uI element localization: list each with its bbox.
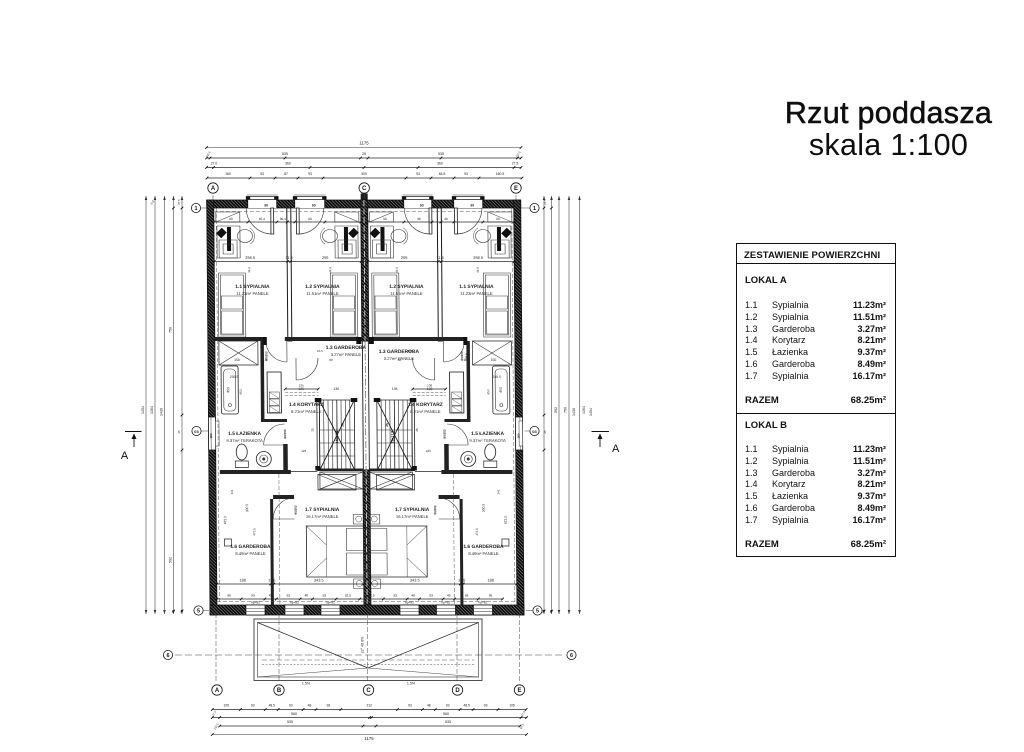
svg-text:A: A bbox=[215, 688, 220, 694]
svg-text:343.5: 343.5 bbox=[314, 578, 324, 583]
svg-text:125: 125 bbox=[299, 384, 304, 388]
svg-text:11.23m² PANELE: 11.23m² PANELE bbox=[460, 291, 493, 296]
svg-text:87: 87 bbox=[284, 172, 288, 176]
svg-text:90: 90 bbox=[470, 204, 474, 208]
svg-text:1.2 SYPIALNIA: 1.2 SYPIALNIA bbox=[305, 284, 340, 290]
svg-text:48: 48 bbox=[411, 594, 415, 598]
svg-text:1.2 SYPIALNIA: 1.2 SYPIALNIA bbox=[389, 284, 424, 290]
svg-text:1175: 1175 bbox=[359, 141, 369, 146]
svg-text:1430: 1430 bbox=[572, 408, 576, 416]
svg-text:560: 560 bbox=[443, 712, 449, 716]
svg-text:535: 535 bbox=[438, 152, 444, 156]
svg-text:27.5: 27.5 bbox=[211, 710, 217, 717]
svg-text:35: 35 bbox=[543, 430, 547, 434]
svg-text:93: 93 bbox=[408, 703, 412, 707]
svg-text:180: 180 bbox=[517, 433, 521, 438]
svg-text:212: 212 bbox=[366, 703, 372, 707]
svg-text:535: 535 bbox=[282, 152, 288, 156]
svg-text:11.23m² PANELE: 11.23m² PANELE bbox=[236, 291, 269, 296]
svg-text:93: 93 bbox=[308, 172, 312, 176]
svg-text:205.5: 205.5 bbox=[260, 353, 264, 361]
svg-text:6: 6 bbox=[570, 653, 573, 659]
svg-text:90/203: 90/203 bbox=[433, 505, 437, 515]
svg-text:93: 93 bbox=[286, 594, 290, 598]
svg-text:93: 93 bbox=[416, 172, 420, 176]
svg-text:35: 35 bbox=[177, 430, 181, 434]
svg-text:1175: 1175 bbox=[364, 736, 374, 741]
svg-text:95: 95 bbox=[489, 594, 493, 598]
svg-text:255: 255 bbox=[322, 255, 329, 260]
svg-text:10.5: 10.5 bbox=[317, 349, 323, 353]
svg-text:535: 535 bbox=[287, 720, 293, 724]
svg-text:750: 750 bbox=[564, 407, 568, 413]
svg-text:341: 341 bbox=[230, 489, 234, 494]
svg-text:137.5: 137.5 bbox=[515, 150, 522, 158]
svg-text:80/203: 80/203 bbox=[264, 351, 268, 361]
svg-text:93: 93 bbox=[229, 217, 233, 221]
svg-text:9.37m² TERAKOTA: 9.37m² TERAKOTA bbox=[469, 438, 506, 443]
svg-text:95: 95 bbox=[227, 594, 231, 598]
svg-text:48: 48 bbox=[308, 703, 312, 707]
svg-text:30.1: 30.1 bbox=[280, 217, 286, 221]
svg-text:90: 90 bbox=[420, 204, 424, 208]
svg-text:16.17m² PANELE: 16.17m² PANELE bbox=[396, 514, 429, 519]
svg-text:03: 03 bbox=[532, 429, 537, 434]
svg-text:1.3 GARDEROBA: 1.3 GARDEROBA bbox=[326, 345, 367, 351]
svg-text:1: 1 bbox=[533, 206, 536, 212]
svg-text:A: A bbox=[121, 450, 129, 462]
svg-text:1.5%: 1.5% bbox=[407, 682, 416, 686]
svg-text:84.5: 84.5 bbox=[439, 172, 446, 176]
svg-text:97.5: 97.5 bbox=[519, 723, 525, 730]
svg-text:16.17m² PANELE: 16.17m² PANELE bbox=[306, 514, 339, 519]
svg-text:1.6 GARDEROBA: 1.6 GARDEROBA bbox=[230, 544, 271, 550]
svg-text:205.5: 205.5 bbox=[464, 353, 468, 361]
svg-text:9.37m² TERAKOTA: 9.37m² TERAKOTA bbox=[226, 438, 263, 443]
svg-text:22° 46.6%: 22° 46.6% bbox=[361, 636, 365, 653]
svg-text:1: 1 bbox=[194, 206, 197, 212]
svg-text:750: 750 bbox=[169, 327, 173, 333]
svg-text:44.5: 44.5 bbox=[328, 267, 332, 273]
svg-text:560: 560 bbox=[291, 712, 297, 716]
svg-text:473.5: 473.5 bbox=[252, 528, 256, 536]
svg-text:1.1 SYPIALNIA: 1.1 SYPIALNIA bbox=[459, 284, 494, 290]
svg-text:255: 255 bbox=[401, 255, 408, 260]
svg-text:472.5: 472.5 bbox=[223, 516, 227, 525]
svg-text:1454: 1454 bbox=[589, 408, 593, 416]
svg-text:93: 93 bbox=[429, 594, 433, 598]
svg-text:8.49m² PANELE: 8.49m² PANELE bbox=[468, 551, 499, 556]
svg-text:592: 592 bbox=[169, 557, 173, 563]
svg-text:93: 93 bbox=[383, 217, 387, 221]
svg-text:80/203: 80/203 bbox=[443, 429, 447, 439]
svg-text:8.49m² PANELE: 8.49m² PANELE bbox=[235, 551, 266, 556]
svg-text:D: D bbox=[455, 688, 460, 694]
svg-text:8.21m² PANELE: 8.21m² PANELE bbox=[410, 409, 441, 414]
svg-text:93: 93 bbox=[308, 217, 312, 221]
svg-text:213: 213 bbox=[149, 199, 155, 205]
svg-text:25: 25 bbox=[340, 423, 344, 427]
svg-text:16x17.8: 16x17.8 bbox=[391, 431, 395, 444]
svg-text:8.21m² PANELE: 8.21m² PANELE bbox=[291, 409, 322, 414]
svg-text:1430: 1430 bbox=[160, 408, 164, 416]
svg-text:27.5: 27.5 bbox=[177, 199, 181, 205]
svg-text:03: 03 bbox=[194, 429, 199, 434]
svg-text:C: C bbox=[366, 688, 371, 694]
svg-text:360: 360 bbox=[437, 161, 443, 165]
svg-text:11.51m² PANELE: 11.51m² PANELE bbox=[306, 291, 339, 296]
svg-text:48.5: 48.5 bbox=[269, 703, 276, 707]
svg-text:45: 45 bbox=[269, 594, 273, 598]
svg-text:25: 25 bbox=[362, 152, 366, 156]
svg-text:90/203: 90/203 bbox=[294, 505, 298, 515]
svg-text:1.1 SYPIALNIA: 1.1 SYPIALNIA bbox=[235, 284, 270, 290]
svg-text:E: E bbox=[517, 688, 521, 694]
svg-text:1364: 1364 bbox=[582, 406, 586, 414]
svg-text:136: 136 bbox=[333, 387, 339, 391]
svg-text:80: 80 bbox=[398, 358, 402, 362]
svg-text:360: 360 bbox=[285, 161, 291, 165]
svg-text:230.5: 230.5 bbox=[230, 375, 239, 379]
svg-text:136: 136 bbox=[392, 387, 398, 391]
svg-text:11.5: 11.5 bbox=[285, 255, 292, 260]
svg-text:44.5: 44.5 bbox=[395, 267, 399, 273]
svg-text:93: 93 bbox=[446, 703, 450, 707]
svg-text:93: 93 bbox=[464, 172, 468, 176]
svg-text:hp=82: hp=82 bbox=[478, 601, 487, 605]
svg-text:1.4 KORYTARZ: 1.4 KORYTARZ bbox=[289, 402, 324, 408]
svg-text:592: 592 bbox=[554, 407, 558, 413]
svg-text:1.3 GARDEROBA: 1.3 GARDEROBA bbox=[379, 349, 420, 355]
svg-text:5: 5 bbox=[197, 609, 200, 615]
svg-text:A: A bbox=[211, 186, 216, 192]
svg-text:180: 180 bbox=[239, 578, 246, 583]
svg-text:A: A bbox=[612, 443, 620, 455]
svg-text:27.5: 27.5 bbox=[520, 710, 526, 717]
svg-text:1.7 SYPIALNIA: 1.7 SYPIALNIA bbox=[395, 507, 430, 513]
svg-text:93: 93 bbox=[327, 703, 331, 707]
svg-text:160: 160 bbox=[225, 172, 231, 176]
svg-text:10.5: 10.5 bbox=[407, 349, 413, 353]
svg-text:93: 93 bbox=[484, 703, 488, 707]
svg-text:343.5: 343.5 bbox=[410, 578, 420, 583]
svg-text:27.5: 27.5 bbox=[512, 161, 519, 165]
svg-text:45.4: 45.4 bbox=[259, 217, 265, 221]
svg-text:180: 180 bbox=[487, 578, 494, 583]
svg-text:48: 48 bbox=[427, 703, 431, 707]
svg-text:453: 453 bbox=[226, 387, 230, 393]
svg-text:472.5: 472.5 bbox=[504, 516, 508, 525]
svg-text:1.5%: 1.5% bbox=[302, 682, 311, 686]
svg-text:473.5: 473.5 bbox=[475, 528, 479, 536]
svg-text:48.5: 48.5 bbox=[463, 703, 470, 707]
svg-text:90: 90 bbox=[264, 204, 268, 208]
svg-text:93: 93 bbox=[322, 594, 326, 598]
svg-text:93: 93 bbox=[260, 172, 264, 176]
svg-text:93: 93 bbox=[393, 594, 397, 598]
svg-text:hp=82: hp=82 bbox=[251, 601, 260, 605]
svg-text:hp=82: hp=82 bbox=[405, 601, 414, 605]
svg-text:48: 48 bbox=[304, 594, 308, 598]
svg-text:1.5 ŁAZIENKA: 1.5 ŁAZIENKA bbox=[471, 431, 504, 437]
svg-text:160.5: 160.5 bbox=[496, 172, 505, 176]
svg-text:27.5: 27.5 bbox=[543, 199, 547, 205]
svg-text:300.5: 300.5 bbox=[245, 504, 249, 513]
svg-text:93: 93 bbox=[251, 594, 255, 598]
svg-text:45: 45 bbox=[447, 594, 451, 598]
svg-text:hp=82: hp=82 bbox=[441, 601, 450, 605]
svg-text:11.51m² PANELE: 11.51m² PANELE bbox=[390, 291, 423, 296]
svg-text:300.5: 300.5 bbox=[482, 504, 486, 513]
svg-text:27.0: 27.0 bbox=[211, 161, 218, 165]
svg-text:11.5: 11.5 bbox=[436, 255, 443, 260]
svg-text:309: 309 bbox=[361, 172, 367, 176]
svg-text:150: 150 bbox=[234, 358, 240, 362]
svg-text:11.5: 11.5 bbox=[458, 578, 465, 583]
svg-text:hp=82: hp=82 bbox=[290, 601, 299, 605]
svg-text:1.7 SYPIALNIA: 1.7 SYPIALNIA bbox=[305, 507, 340, 513]
svg-text:453: 453 bbox=[499, 387, 503, 393]
svg-text:40: 40 bbox=[444, 217, 448, 221]
svg-text:93: 93 bbox=[465, 594, 469, 598]
svg-text:93: 93 bbox=[251, 703, 255, 707]
svg-text:256.5: 256.5 bbox=[473, 255, 483, 260]
svg-text:5: 5 bbox=[536, 609, 539, 615]
svg-text:1.5 ŁAZIENKA: 1.5 ŁAZIENKA bbox=[228, 431, 261, 437]
svg-text:535: 535 bbox=[445, 720, 451, 724]
svg-text:16x17.8: 16x17.8 bbox=[335, 431, 339, 444]
svg-text:93: 93 bbox=[289, 703, 293, 707]
svg-text:92.5: 92.5 bbox=[368, 594, 374, 598]
svg-text:105: 105 bbox=[509, 703, 515, 707]
svg-text:93: 93 bbox=[496, 217, 500, 221]
svg-text:256.5: 256.5 bbox=[245, 255, 255, 260]
svg-text:25: 25 bbox=[415, 428, 419, 432]
svg-text:92.5: 92.5 bbox=[345, 594, 351, 598]
svg-text:105: 105 bbox=[224, 703, 230, 707]
svg-text:hp=82: hp=82 bbox=[326, 601, 335, 605]
svg-text:1454: 1454 bbox=[141, 406, 145, 414]
svg-text:B: B bbox=[277, 688, 282, 694]
svg-text:1.6 GARDEROBA: 1.6 GARDEROBA bbox=[463, 544, 504, 550]
svg-text:11.5: 11.5 bbox=[268, 578, 275, 583]
svg-text:1.4 KORYTARZ: 1.4 KORYTARZ bbox=[408, 402, 443, 408]
svg-text:25: 25 bbox=[311, 428, 315, 432]
svg-text:341: 341 bbox=[497, 489, 501, 494]
svg-text:136: 136 bbox=[427, 384, 432, 388]
svg-text:653: 653 bbox=[486, 389, 490, 394]
svg-text:44.5: 44.5 bbox=[247, 267, 251, 273]
svg-text:3.27m² PANELE: 3.27m² PANELE bbox=[331, 352, 362, 357]
svg-text:44.5: 44.5 bbox=[476, 267, 480, 273]
svg-text:30: 30 bbox=[417, 217, 421, 221]
svg-text:E: E bbox=[514, 186, 518, 192]
svg-text:90: 90 bbox=[312, 204, 316, 208]
svg-text:1364: 1364 bbox=[150, 406, 154, 414]
svg-text:123: 123 bbox=[301, 449, 306, 453]
svg-text:C: C bbox=[362, 186, 367, 192]
svg-text:653: 653 bbox=[239, 389, 243, 394]
svg-text:25: 25 bbox=[385, 423, 389, 427]
svg-text:80: 80 bbox=[329, 358, 333, 362]
svg-text:230.5: 230.5 bbox=[492, 375, 501, 379]
svg-text:80/203: 80/203 bbox=[460, 351, 464, 361]
svg-text:150: 150 bbox=[491, 358, 497, 362]
svg-text:80/203: 80/203 bbox=[283, 429, 287, 439]
svg-text:123: 123 bbox=[426, 449, 431, 453]
svg-text:180: 180 bbox=[209, 433, 213, 438]
svg-text:6: 6 bbox=[166, 653, 169, 659]
